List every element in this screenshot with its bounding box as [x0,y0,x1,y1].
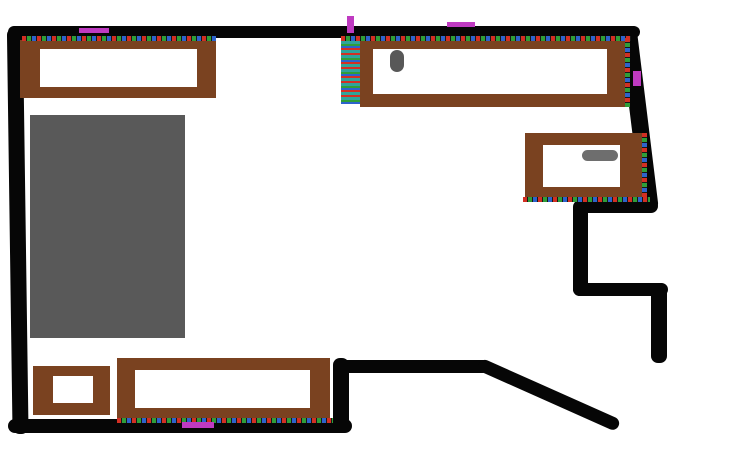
marker-top-left [79,28,109,33]
dash-desk-bottom [117,418,333,423]
dash-desk-top-right-edge [625,38,630,107]
stool-bottom-left [33,366,110,415]
floor-plan-canvas [0,0,730,456]
desk-bottom [117,358,330,419]
marker-right-wall [633,71,641,86]
dash-desk-top-right [341,36,631,41]
handle-cabinet-right [582,150,618,161]
radiator-strip [341,36,361,104]
dash-cabinet-right-edge [642,133,647,202]
rug [30,115,185,338]
wall-mid [335,360,489,373]
cabinet-right [525,133,643,199]
marker-top-right [447,22,475,27]
wall-nook-right [651,283,667,363]
marker-top-middle [347,16,354,33]
marker-bottom [182,422,214,428]
desk-top-left [20,40,216,98]
knob-desk-top-right [390,50,404,72]
dash-desk-top-left [22,36,216,41]
dash-cabinet-bottom [523,197,650,202]
wall-nook-left [573,200,588,296]
wall-diagonal [476,358,621,432]
